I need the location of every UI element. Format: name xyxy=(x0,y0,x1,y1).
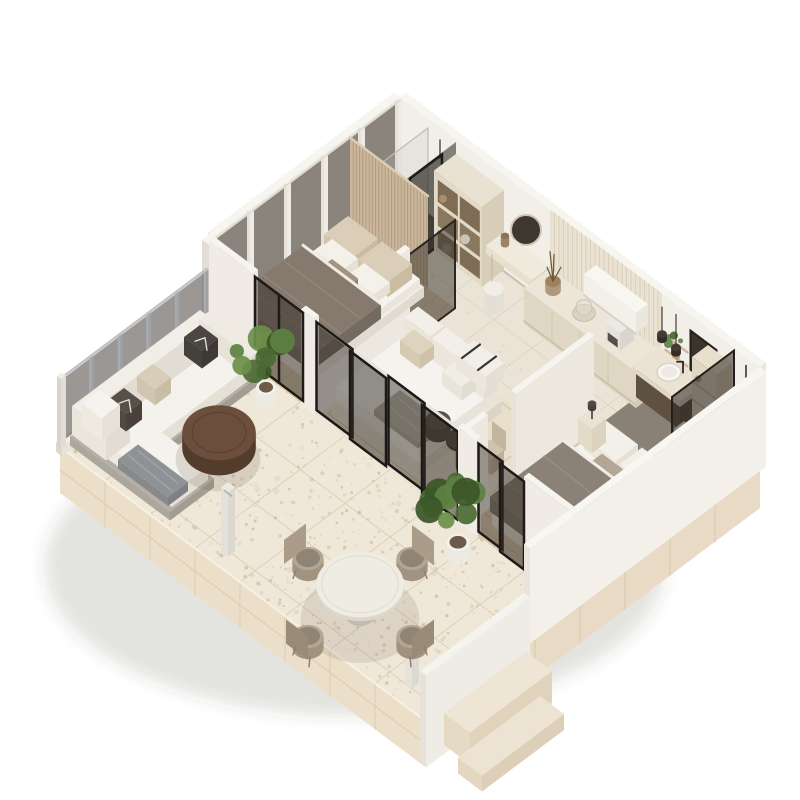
floor-plan-render xyxy=(0,0,800,800)
patio-lamp xyxy=(221,482,235,557)
vanity-wall-mirror xyxy=(511,215,541,245)
isometric-apartment-svg xyxy=(0,0,800,800)
outdoor-coffee-table xyxy=(176,405,261,491)
